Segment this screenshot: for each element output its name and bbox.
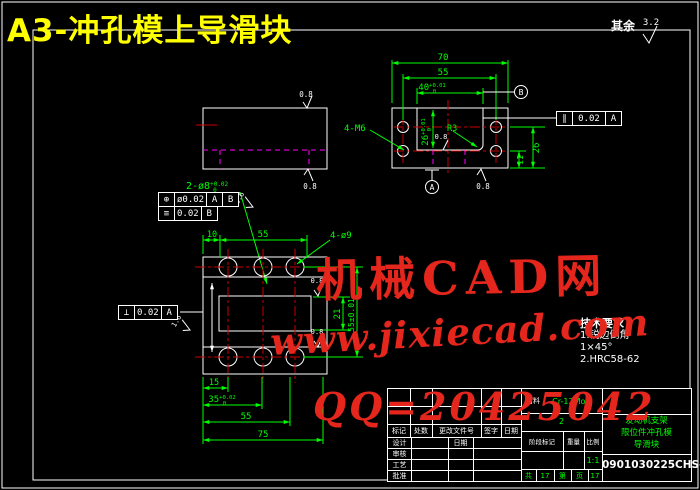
label-4-d9: 4-ø9	[330, 231, 352, 241]
datum-ref: A	[207, 192, 223, 207]
symmetry-tolerance-symbol: ≡	[158, 206, 175, 221]
tech-req-line: 2.HRC58-62	[580, 354, 640, 366]
perpendicularity-symbol: ⊥	[118, 305, 135, 320]
tb-weight-label: 重量	[563, 438, 584, 446]
datum-a: A	[425, 170, 439, 194]
top-view: 70 55 40+0.010 26+0.010 R3 26 11 4-M6 0.…	[344, 53, 556, 194]
tb-part-name-line2: 限位件冲孔模	[602, 429, 691, 437]
roughness-value: 0.8	[476, 182, 490, 191]
dim-26-channel: 26+0.010	[421, 118, 433, 145]
datum-ref: B	[223, 192, 239, 207]
side-view: 0.8 0.8	[196, 90, 327, 191]
drawing-title: A3-冲孔模上导滑块	[7, 5, 292, 50]
tb-row-approve: 批准	[388, 472, 411, 480]
fcf-perpendicularity: ⊥ 0.02 A	[118, 305, 178, 320]
dim-75: 75	[258, 430, 269, 440]
fcf-parallelism: ∥ 0.02 A	[556, 111, 622, 126]
dim-55: 55	[438, 68, 449, 78]
fcf-symmetry: ≡ 0.02 B	[158, 206, 218, 221]
roughness-check-icon	[643, 26, 657, 43]
roughness-value: 0.8	[299, 90, 313, 99]
centerlines	[195, 249, 334, 383]
tolerance-value: 0.02	[135, 305, 162, 320]
tb-date-label: 日期	[448, 439, 473, 447]
dim-26-right: 26	[532, 143, 542, 154]
tb-scale-value: 1:1	[584, 457, 602, 465]
fcf-position: ⊕ ø0.02 A B	[158, 192, 239, 207]
roughness-mark	[439, 140, 448, 150]
dim-15: 15	[209, 378, 219, 388]
svg-text:B: B	[519, 88, 524, 97]
roughness-mark	[477, 169, 486, 181]
svg-text:A: A	[430, 183, 435, 192]
tb-part-name-line3: 导滑块	[602, 441, 691, 449]
tb-row-design: 设计	[388, 439, 411, 447]
datum-ref: A	[606, 111, 622, 126]
centerlines	[394, 100, 506, 176]
roughness-value: 0.8	[303, 182, 317, 191]
tb-stage-label: 阶段标记	[521, 438, 563, 446]
datum-ref: A	[162, 305, 178, 320]
parallelism-symbol: ∥	[556, 111, 573, 126]
position-tolerance-symbol: ⊕	[158, 192, 175, 207]
cad-drawing-sheet: 0.8 0.8	[0, 0, 700, 490]
datum-b: B	[483, 86, 528, 99]
dim-55-top: 55	[258, 230, 269, 240]
svg-text:其余: 其余	[611, 18, 636, 33]
tb-sheet-di: 第	[554, 472, 571, 480]
datum-ref: B	[202, 206, 218, 221]
roughness-mark	[303, 96, 313, 181]
label-4-m6: 4-M6	[344, 124, 366, 134]
dim-55-bottom: 55	[241, 412, 252, 422]
tb-row-check: 审核	[388, 450, 411, 458]
dimension-lines	[370, 60, 545, 168]
roughness-value: 0.8	[435, 133, 448, 141]
tb-sheet-gong: 共	[521, 472, 536, 480]
tolerance-value: 0.02	[175, 206, 202, 221]
dim-r3: R3	[447, 124, 457, 134]
tb-scale-label: 比例	[584, 438, 602, 446]
tb-sheet-num: 17	[588, 472, 602, 480]
tolerance-value: 0.02	[573, 111, 606, 126]
tolerance-value: ø0.02	[175, 192, 207, 207]
tb-sheet-ye: 页	[571, 472, 588, 480]
watermark-line1: 机械CAD网	[315, 239, 608, 310]
dim-70: 70	[438, 53, 449, 63]
dim-10: 10	[207, 230, 217, 240]
tb-drawing-number: 0901030225CHS-16	[602, 461, 691, 469]
watermark-line3: QQ=20425042	[313, 384, 656, 429]
tb-row-process: 工艺	[388, 461, 411, 469]
dim-11: 11	[516, 155, 525, 165]
tb-sheet-total: 17	[536, 472, 554, 480]
